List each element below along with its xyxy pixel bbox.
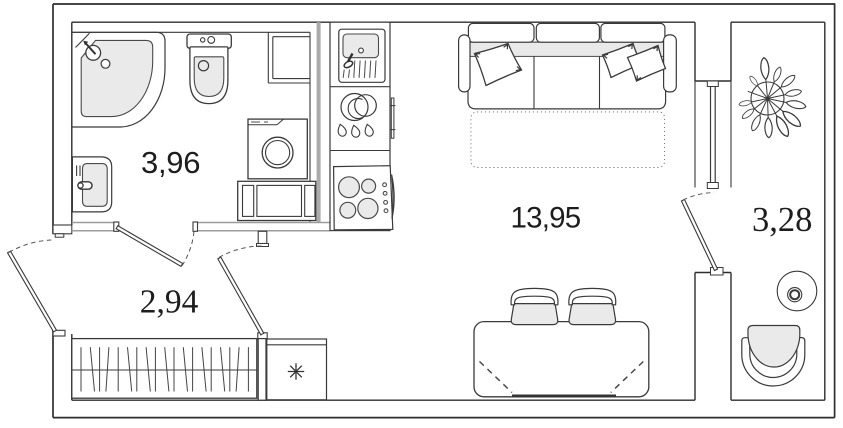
- svg-text:2,94: 2,94: [140, 284, 199, 321]
- svg-text:13,95: 13,95: [511, 201, 581, 234]
- svg-text:3,96: 3,96: [141, 145, 200, 180]
- svg-text:3,28: 3,28: [752, 201, 812, 239]
